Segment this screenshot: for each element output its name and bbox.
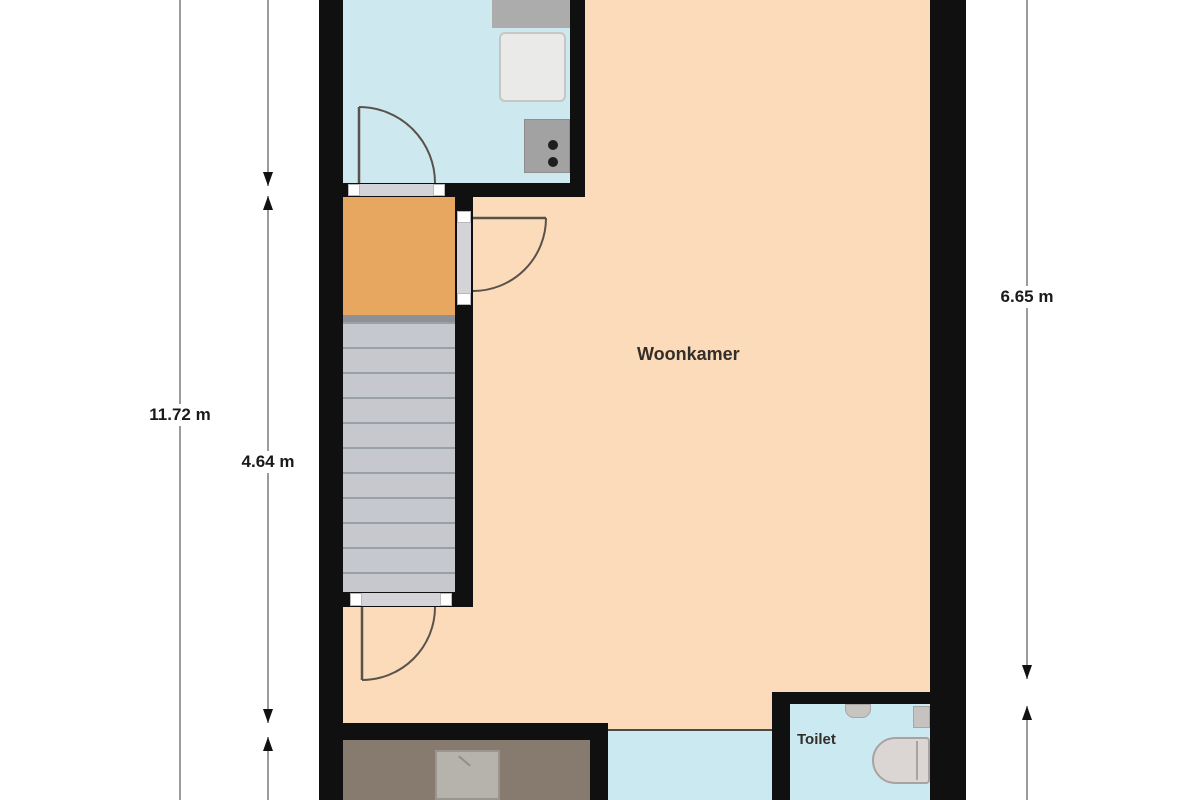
dimension-arrow-icon bbox=[263, 172, 273, 186]
kitchen-door-hinge bbox=[348, 184, 360, 196]
stairs-door-hinge bbox=[350, 593, 362, 606]
toilet-corner-fixture bbox=[913, 706, 930, 728]
dimension-arrow-icon bbox=[1022, 706, 1032, 720]
stairs-door-hinge bbox=[440, 593, 452, 606]
toilet-wall-left bbox=[772, 692, 790, 800]
hall-door-hinge bbox=[457, 293, 471, 305]
laundry-fixture bbox=[435, 750, 500, 800]
staircase bbox=[343, 315, 455, 592]
dimension-label-living: 6.65 m bbox=[996, 286, 1059, 308]
stove-burner-icon bbox=[548, 157, 558, 167]
exterior-wall-right bbox=[930, 0, 966, 800]
exterior-wall-left bbox=[319, 0, 343, 800]
dimension-arrow-icon bbox=[263, 737, 273, 751]
stove-burner-icon bbox=[548, 140, 558, 150]
kitchen-door-hinge bbox=[433, 184, 445, 196]
dimension-label-hall-stairs: 4.64 m bbox=[237, 451, 300, 473]
toilet-bowl bbox=[872, 737, 930, 784]
utility-wall-right bbox=[590, 723, 608, 800]
toilet-tank-divider bbox=[916, 741, 918, 780]
dimension-label-overall: 11.72 m bbox=[144, 404, 215, 426]
toilet-wall-top bbox=[772, 692, 930, 704]
stove bbox=[524, 119, 570, 173]
dimension-arrow-icon bbox=[263, 196, 273, 210]
dimension-arrow-icon bbox=[263, 709, 273, 723]
living-room-label: Woonkamer bbox=[637, 344, 740, 365]
drain-mark-icon bbox=[458, 755, 471, 766]
living-wall-bottom bbox=[319, 723, 608, 740]
wet-hall-floor bbox=[608, 729, 772, 800]
kitchen-wall-right bbox=[570, 0, 585, 197]
toilet-label: Toilet bbox=[797, 731, 836, 748]
hall-door-opening bbox=[457, 223, 471, 293]
kitchen-counter bbox=[492, 0, 570, 28]
dimension-arrow-icon bbox=[1022, 665, 1032, 679]
stairs-door-opening bbox=[362, 593, 440, 606]
entry-hall-floor bbox=[343, 197, 455, 315]
floorplan-canvas: Woonkamer Toilet 11.72 m 4.64 m 6.65 m bbox=[0, 0, 1200, 800]
toilet-hand-basin bbox=[845, 704, 871, 718]
kitchen-sink-unit bbox=[499, 32, 566, 102]
kitchen-door-opening bbox=[360, 184, 433, 196]
hall-door-hinge bbox=[457, 211, 471, 223]
